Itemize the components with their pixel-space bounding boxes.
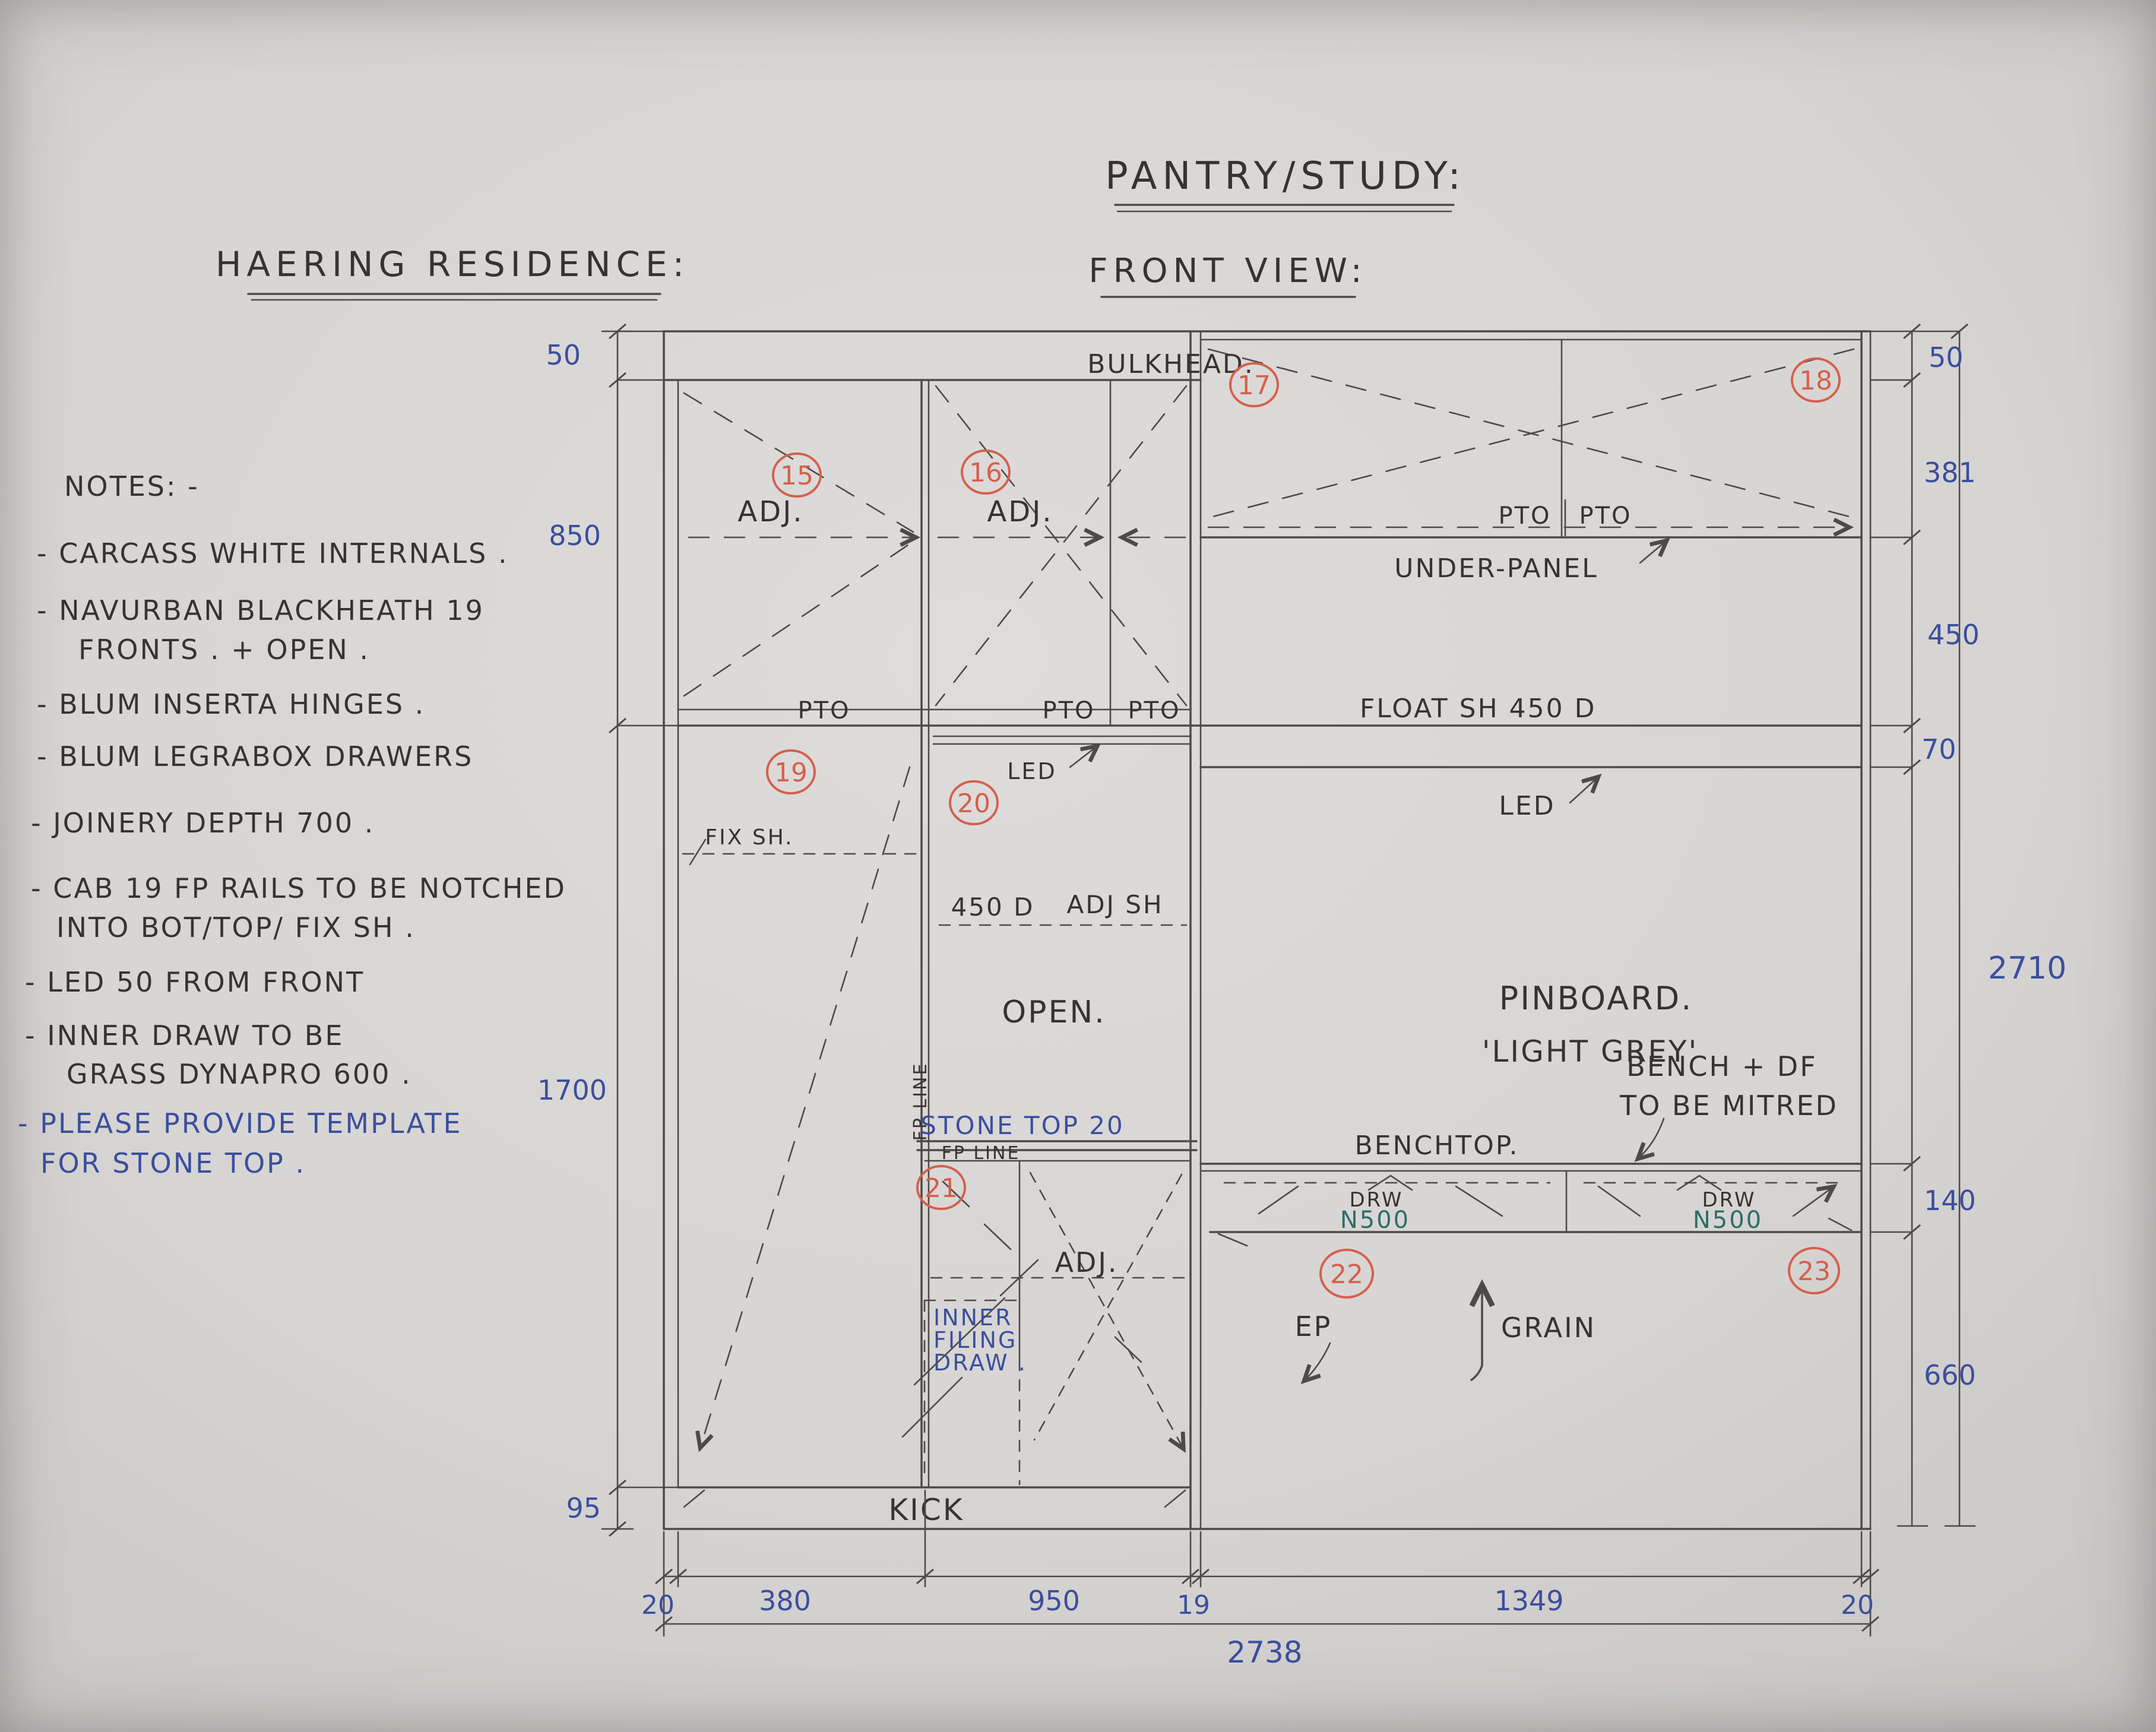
dim-right-total-2710: 2710 (1988, 951, 2066, 986)
pto-label: PTO (1128, 697, 1180, 724)
drawing-sheet: PANTRY/STUDY: FRONT VIEW: HAERING RESIDE… (0, 0, 2156, 1732)
benchtop-label: BENCHTOP. (1355, 1131, 1519, 1161)
note-line-blue: FOR STONE TOP . (40, 1147, 306, 1179)
item-number-20: 20 (957, 789, 990, 819)
pto-label: PTO (1498, 502, 1551, 530)
fp-line-vertical-label: FP LINE (910, 1062, 931, 1141)
dim-right-660: 660 (1924, 1359, 1976, 1391)
drawer-model-label: N500 (1340, 1207, 1410, 1234)
item-number-18: 18 (1799, 366, 1832, 396)
dim-left-850: 850 (549, 520, 601, 552)
dim-right-50: 50 (1929, 341, 1964, 373)
float-shelf-label: FLOAT SH 450 D (1360, 694, 1597, 724)
note-line: - LED 50 FROM FRONT (25, 966, 365, 998)
note-line: GRASS DYNAPRO 600 . (67, 1058, 412, 1090)
fix-shelf-label: FIX SH. (705, 825, 793, 850)
adj-door-21-label: ADJ. (1055, 1246, 1118, 1278)
bench-mitred-note-2: TO BE MITRED (1619, 1090, 1838, 1122)
adj-door-15-label: ADJ. (737, 495, 803, 528)
note-line: - CAB 19 FP RAILS TO BE NOTCHED (31, 872, 566, 904)
pantry-study-front-view-drawing: PANTRY/STUDY: FRONT VIEW: HAERING RESIDE… (0, 0, 2156, 1732)
pto-label: PTO (797, 697, 850, 724)
kick-label: KICK (888, 1493, 964, 1527)
dim-bottom-total-2738: 2738 (1227, 1635, 1302, 1670)
note-line: - JOINERY DEPTH 700 . (31, 807, 375, 839)
item-number-22: 22 (1330, 1259, 1363, 1290)
led-label: LED (1499, 791, 1555, 821)
ep-label: EP (1295, 1310, 1332, 1342)
note-line: - BLUM INSERTA HINGES . (37, 688, 425, 720)
dim-right-450: 450 (1927, 619, 1980, 651)
led-label: LED (1007, 758, 1056, 784)
fp-line-label: FP LINE (942, 1143, 1021, 1164)
note-line: INTO BOT/TOP/ FIX SH . (56, 911, 416, 943)
open-label: OPEN. (1002, 995, 1106, 1030)
bench-mitred-note-1: BENCH + DF (1626, 1050, 1817, 1082)
under-panel-label: UNDER-PANEL (1394, 553, 1598, 584)
dim-bottom-950: 950 (1028, 1585, 1080, 1617)
page-title: PANTRY/STUDY: (1105, 154, 1466, 198)
adj-shelf-label: ADJ SH (1066, 890, 1163, 919)
note-line: FRONTS . + OPEN . (78, 634, 370, 666)
shelf-depth-label: 450 D (951, 892, 1035, 922)
dim-right-70: 70 (1921, 733, 1956, 765)
stone-top-label: STONE TOP 20 (920, 1111, 1125, 1140)
note-line: - NAVURBAN BLACKHEATH 19 (37, 594, 485, 626)
item-number-19: 19 (774, 758, 808, 788)
view-title: FRONT VIEW: (1088, 252, 1367, 290)
adj-door-16-label: ADJ. (987, 495, 1053, 528)
dim-right-140: 140 (1924, 1185, 1976, 1217)
item-number-21: 21 (925, 1173, 958, 1204)
item-number-23: 23 (1797, 1256, 1831, 1287)
note-line: - INNER DRAW TO BE (25, 1019, 344, 1052)
dim-bottom-20-left: 20 (641, 1590, 675, 1620)
dim-bottom-19: 19 (1177, 1590, 1210, 1620)
dim-bottom-20-right: 20 (1841, 1590, 1874, 1620)
notes-heading: NOTES: - (64, 470, 200, 502)
pto-label: PTO (1579, 502, 1632, 530)
pto-label: PTO (1042, 697, 1095, 724)
dim-bottom-1349: 1349 (1494, 1585, 1563, 1617)
dim-left-50: 50 (546, 339, 581, 371)
dim-bottom-380: 380 (759, 1585, 811, 1617)
grain-label: GRAIN (1501, 1312, 1596, 1344)
note-line: - BLUM LEGRABOX DRAWERS (37, 740, 473, 772)
dim-right-381: 381 (1924, 457, 1976, 489)
item-number-17: 17 (1237, 371, 1271, 401)
dim-left-1700: 1700 (537, 1074, 607, 1106)
drawer-model-label: N500 (1693, 1207, 1763, 1234)
item-number-16: 16 (969, 458, 1002, 488)
bulkhead-label: BULKHEAD. (1087, 349, 1255, 379)
dim-left-95: 95 (566, 1492, 601, 1524)
inner-filing-label-3: DRAW . (933, 1350, 1027, 1376)
note-line: - CARCASS WHITE INTERNALS . (37, 537, 509, 569)
note-line-blue: - PLEASE PROVIDE TEMPLATE (18, 1107, 463, 1139)
pinboard-label: PINBOARD. (1499, 980, 1693, 1017)
residence-title: HAERING RESIDENCE: (216, 244, 689, 284)
item-number-15: 15 (780, 461, 813, 491)
